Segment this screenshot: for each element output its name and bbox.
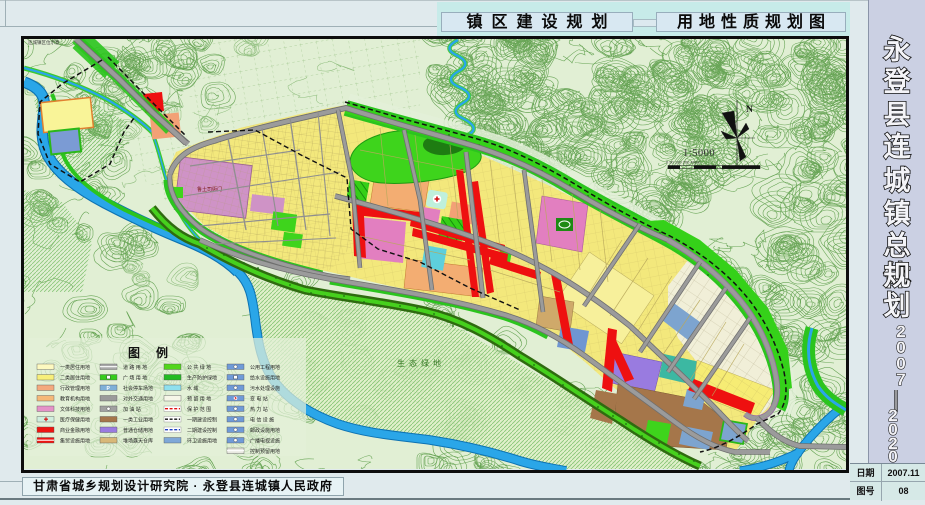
- svg-text:N: N: [746, 105, 753, 115]
- svg-text:连城镇区位示意: 连城镇区位示意: [28, 39, 60, 46]
- svg-text:公 共 绿 地: 公 共 绿 地: [187, 364, 211, 371]
- svg-text:道 路 用 地: 道 路 用 地: [123, 364, 147, 371]
- svg-text:污水处理设施: 污水处理设施: [250, 385, 280, 392]
- svg-text:镇: 镇: [884, 199, 911, 229]
- svg-text:城: 城: [884, 166, 911, 196]
- svg-text:二期建设控制: 二期建设控制: [187, 427, 217, 434]
- svg-text:控制预留用地: 控制预留用地: [250, 448, 280, 455]
- svg-text:环卫设施用地: 环卫设施用地: [187, 438, 217, 445]
- svg-text:医疗保健用地: 医疗保健用地: [60, 417, 90, 424]
- svg-text:文体科技用地: 文体科技用地: [60, 406, 90, 413]
- svg-text:0 50 100 200 400: 0 50 100 200 400m: [666, 160, 701, 165]
- svg-text:生态绿地: 生态绿地: [397, 358, 445, 368]
- svg-text:堆场露天仓库: 堆场露天仓库: [123, 438, 153, 445]
- svg-text:公用工程用地: 公用工程用地: [250, 364, 280, 371]
- svg-text:水 域: 水 域: [187, 385, 198, 392]
- svg-text:总: 总: [884, 231, 911, 261]
- svg-text:电 信 设 施: 电 信 设 施: [250, 417, 274, 424]
- svg-text:县: 县: [884, 100, 911, 130]
- svg-text:连: 连: [884, 131, 912, 162]
- svg-text:一类工业用地: 一类工业用地: [123, 417, 153, 424]
- svg-text:二类居住用地: 二类居住用地: [60, 375, 90, 382]
- svg-text:图例: 图例: [128, 345, 184, 360]
- svg-text:变 电 站: 变 电 站: [250, 396, 268, 403]
- svg-text:一期建设控制: 一期建设控制: [187, 417, 217, 424]
- svg-text:邮政设施用地: 邮政设施用地: [250, 427, 280, 434]
- svg-text:7: 7: [896, 370, 905, 389]
- svg-text:加 油 站: 加 油 站: [123, 406, 141, 413]
- svg-text:普通仓储用地: 普通仓储用地: [123, 427, 153, 434]
- svg-text:预 留 用 地: 预 留 用 地: [187, 396, 211, 403]
- svg-text:广播电视设施: 广播电视设施: [250, 438, 280, 445]
- svg-text:生产防护绿地: 生产防护绿地: [187, 375, 217, 382]
- svg-text:规: 规: [884, 261, 911, 291]
- svg-text:永: 永: [883, 35, 911, 65]
- svg-text:对外交通用地: 对外交通用地: [123, 396, 153, 403]
- svg-text:热 力 站: 热 力 站: [250, 406, 268, 413]
- svg-text:教育机构用地: 教育机构用地: [60, 396, 90, 403]
- svg-text:划: 划: [884, 291, 911, 321]
- svg-text:商业金融用地: 商业金融用地: [60, 427, 90, 434]
- svg-text:行政管理用地: 行政管理用地: [60, 385, 90, 392]
- svg-text:给水设施用地: 给水设施用地: [250, 375, 280, 382]
- svg-text:1:5000: 1:5000: [683, 148, 715, 159]
- svg-text:广 场 用 地: 广 场 用 地: [123, 375, 147, 382]
- svg-text:集贸设施用地: 集贸设施用地: [60, 438, 90, 445]
- svg-text:保 护 范 围: 保 护 范 围: [187, 406, 211, 413]
- svg-text:社会停车场地: 社会停车场地: [123, 385, 153, 392]
- svg-text:登: 登: [883, 67, 912, 97]
- svg-text:一类居住用地: 一类居住用地: [60, 364, 90, 371]
